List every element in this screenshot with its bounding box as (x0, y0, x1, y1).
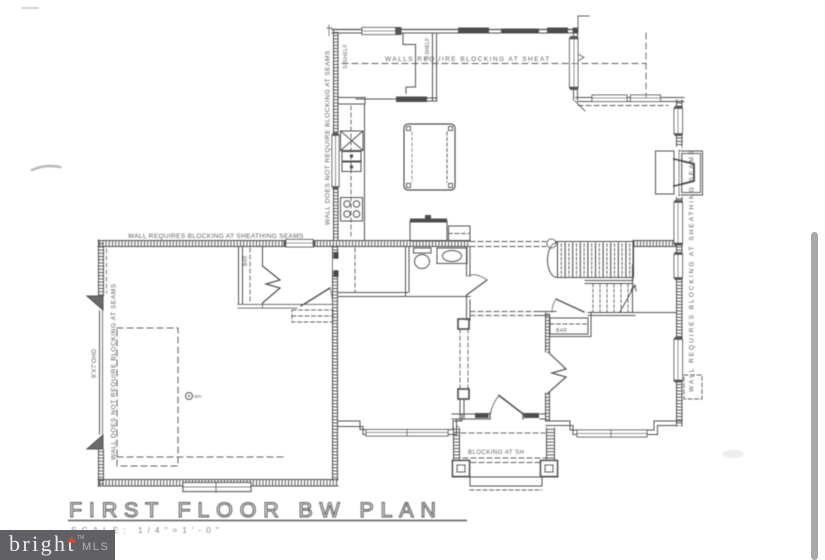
svg-text:BLOCKING AT SH: BLOCKING AT SH (468, 450, 524, 456)
svg-text:WH: WH (194, 394, 202, 399)
svg-text:S-SHELF: S-SHELF (425, 37, 431, 60)
svg-text:B4R: B4R (243, 255, 249, 266)
svg-text:FIRST FLOOR BW PLAN: FIRST FLOOR BW PLAN (69, 498, 443, 522)
svg-text:B4R: B4R (556, 328, 567, 334)
svg-text:WALLS REQUIRE BLOCKING AT SHEA: WALLS REQUIRE BLOCKING AT SHEAT (385, 56, 551, 63)
svg-text:bright: bright (9, 531, 76, 556)
svg-text:MLS: MLS (82, 541, 109, 553)
svg-text:9'X7'OHD: 9'X7'OHD (92, 348, 98, 378)
svg-text:WALL DOES NOT REQUIRE BLOCKING: WALL DOES NOT REQUIRE BLOCKING AT SEAMS (325, 50, 332, 225)
svg-text:WALL REQUIRES BLOCKING AT SHEA: WALL REQUIRES BLOCKING AT SHEATHING SEAM… (689, 149, 696, 392)
svg-text:S-SHELF: S-SHELF (343, 43, 349, 69)
svg-text:WALL DOES NOT REQUIRE BLOCKING: WALL DOES NOT REQUIRE BLOCKING AT SEAMS (111, 283, 118, 460)
svg-text:WALL REQUIRES BLOCKING AT SHEA: WALL REQUIRES BLOCKING AT SHEATHING SEAM… (128, 233, 304, 240)
